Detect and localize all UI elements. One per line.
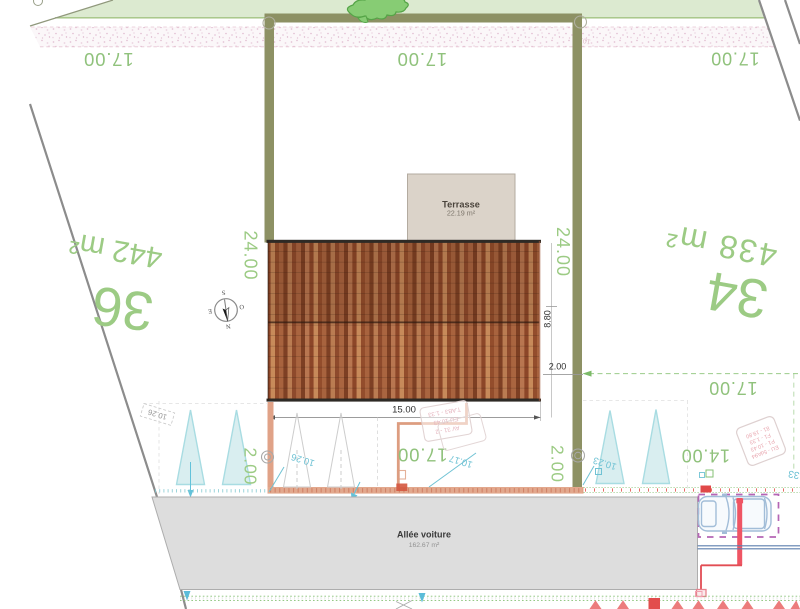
svg-text:S: S xyxy=(221,288,226,295)
svg-text:Allée voiture: Allée voiture xyxy=(397,530,451,540)
svg-text:2.00: 2.00 xyxy=(241,447,261,485)
svg-text:10.26: 10.26 xyxy=(290,451,316,468)
svg-text:36: 36 xyxy=(88,275,156,344)
svg-text:22.19 m²: 22.19 m² xyxy=(447,209,476,218)
svg-text:17.00: 17.00 xyxy=(83,49,133,70)
svg-text:24.00: 24.00 xyxy=(553,227,573,277)
svg-text:14.00: 14.00 xyxy=(681,446,730,466)
svg-text:17.00: 17.00 xyxy=(710,49,759,69)
svg-text:15.00: 15.00 xyxy=(392,405,416,416)
svg-text:24.00: 24.00 xyxy=(241,230,261,280)
svg-text:8.80: 8.80 xyxy=(543,310,553,328)
svg-text:N: N xyxy=(225,322,231,330)
svg-text:2.00: 2.00 xyxy=(549,362,567,372)
svg-text:10.17: 10.17 xyxy=(448,452,474,469)
svg-text:162.67 m²: 162.67 m² xyxy=(409,542,440,549)
svg-text:E: E xyxy=(207,307,212,314)
svg-text:O: O xyxy=(239,303,245,311)
svg-text:33: 33 xyxy=(787,468,800,481)
svg-text:17.00: 17.00 xyxy=(708,378,757,398)
svg-text:17.00: 17.00 xyxy=(397,445,447,466)
svg-text:10.26: 10.26 xyxy=(147,407,168,421)
svg-text:17.00: 17.00 xyxy=(397,49,447,70)
svg-text:2.00: 2.00 xyxy=(548,445,568,483)
